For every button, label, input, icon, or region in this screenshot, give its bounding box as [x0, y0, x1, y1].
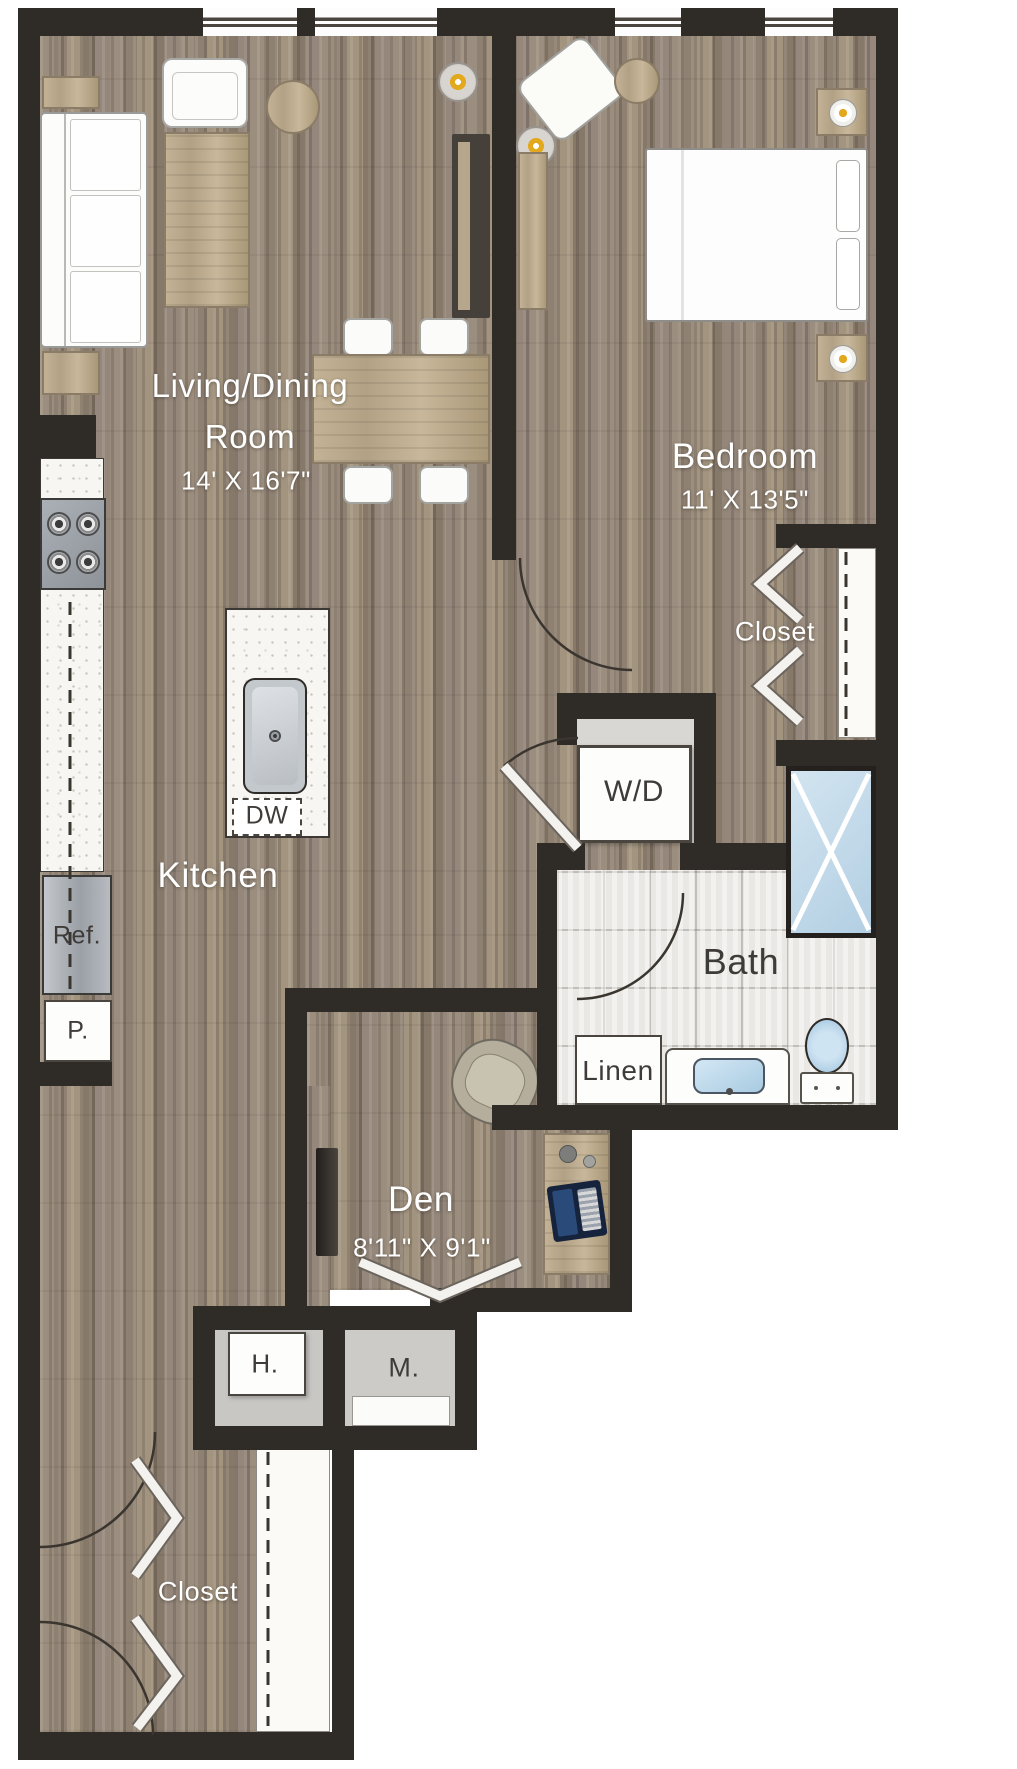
window [200, 8, 300, 36]
stove-burner [76, 512, 100, 536]
living-dining-label-line2: Room [205, 418, 295, 456]
laptop-screen [552, 1189, 578, 1237]
wall-bedroom-closet-top [776, 524, 876, 548]
m-closet-label: M. [388, 1353, 419, 1384]
console-table [164, 132, 250, 308]
tv-console [452, 134, 490, 318]
window [762, 8, 836, 36]
pillow [836, 160, 860, 232]
round-side-table [614, 58, 660, 104]
wall-bedroom-closet-bottom [776, 740, 876, 766]
wall-den-top [285, 988, 537, 1012]
living-dining-label-line1: Living/Dining [152, 367, 349, 405]
wall-pantry-stub [40, 1062, 112, 1086]
wall-hm-bottom [193, 1426, 477, 1450]
wall-wd-left-stub [557, 719, 577, 745]
faucet-dot [726, 1088, 733, 1095]
den-dims: 8'11" X 9'1" [353, 1233, 491, 1264]
wall-tv [316, 1148, 338, 1256]
h-closet-label: H. [251, 1349, 278, 1380]
dining-chair [343, 466, 393, 504]
sofa-back [42, 114, 66, 346]
wall-living-bedroom-divider [492, 36, 516, 560]
laptop-keyboard [577, 1187, 602, 1231]
bedroom-bench [518, 152, 548, 310]
bed [645, 148, 868, 322]
wall-bath-left [537, 870, 557, 1105]
entry-closet-shelf [256, 1445, 330, 1732]
wall-hm-top [193, 1306, 477, 1330]
wall-kitchen-stub [40, 415, 96, 458]
pantry-label: P. [67, 1017, 89, 1046]
dishwasher-label: DW [246, 802, 289, 831]
armchair [162, 58, 248, 128]
stove-burner [47, 512, 71, 536]
side-table [42, 351, 100, 395]
window [312, 8, 440, 36]
wall-bath-bottom [492, 1105, 898, 1130]
bedroom-label: Bedroom [672, 437, 818, 477]
toilet-bowl [805, 1018, 849, 1074]
tank-dot [814, 1086, 818, 1090]
desk-accessory [559, 1145, 577, 1163]
pillow [836, 238, 860, 310]
round-table [266, 80, 320, 134]
armchair-seat [172, 72, 238, 120]
tank-dot [836, 1086, 840, 1090]
entry-closet-label: Closet [158, 1577, 238, 1608]
dining-chair [343, 318, 393, 356]
nightstand [816, 334, 868, 382]
stove [40, 498, 106, 590]
shower [786, 766, 876, 938]
table-lamp [829, 99, 857, 127]
m-closet-shelf [352, 1396, 450, 1426]
wall-right [876, 8, 898, 1130]
bedroom-closet-shelf [838, 548, 876, 738]
wall-hm-left [193, 1330, 215, 1426]
washer-dryer-label: W/D [604, 775, 664, 809]
blanket-fold [681, 150, 684, 320]
sofa-cushion [70, 195, 141, 267]
tv-screen [458, 142, 470, 310]
dining-chair [419, 466, 469, 504]
vanity [665, 1048, 790, 1105]
wall-bottom [18, 1732, 354, 1760]
wall-wd-right [694, 719, 716, 843]
refrigerator-label: Ref. [53, 922, 101, 951]
sofa-cushion [70, 119, 141, 191]
living-dining-dims: 14' X 16'7" [181, 466, 311, 497]
stove-burner [47, 550, 71, 574]
bedroom-dims: 11' X 13'5" [681, 485, 809, 516]
wall-bath-top-left [537, 843, 585, 870]
wall-left [18, 8, 40, 1760]
stove-burner [76, 550, 100, 574]
kitchen-label: Kitchen [158, 856, 279, 896]
ceiling-lamp [438, 62, 478, 102]
wall-wd-top [557, 693, 716, 719]
wall-hm-mid [323, 1330, 345, 1426]
window [612, 8, 684, 36]
wall-bottom-closet-right [332, 1426, 354, 1732]
wall-bath-top-right [680, 843, 786, 870]
side-table [42, 76, 100, 109]
den-label: Den [388, 1180, 454, 1220]
desk-accessory [583, 1155, 596, 1168]
toilet-tank [800, 1072, 854, 1104]
dining-chair [419, 318, 469, 356]
sink-drain [269, 730, 281, 742]
nightstand [816, 88, 868, 136]
island-sink [243, 678, 307, 794]
desk [543, 1133, 610, 1275]
linen-label: Linen [582, 1055, 654, 1087]
toilet [800, 1018, 856, 1105]
wall-den-right [610, 1105, 632, 1312]
sofa [40, 112, 148, 348]
laptop [546, 1180, 607, 1243]
bedroom-closet-label: Closet [735, 617, 815, 648]
floorplan: Living/Dining Room 14' X 16'7" Bedroom 1… [0, 0, 1017, 1769]
bath-label: Bath [703, 941, 779, 983]
table-lamp [829, 345, 857, 373]
sofa-cushion [70, 271, 141, 343]
wall-den-left [285, 1012, 307, 1306]
